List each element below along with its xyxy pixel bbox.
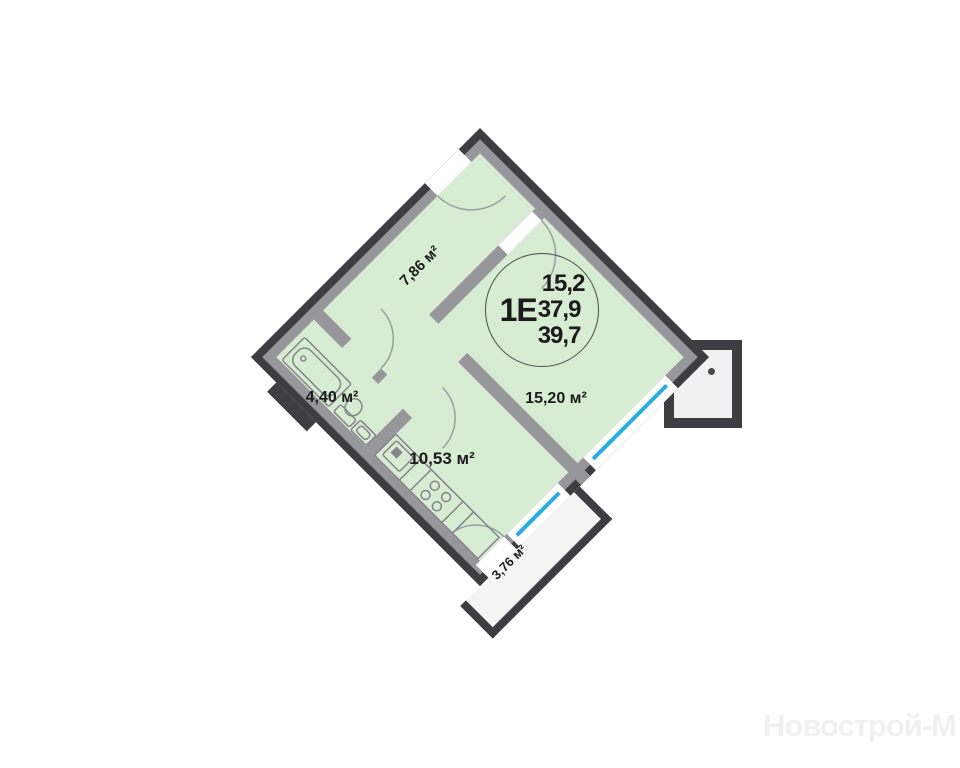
balcony-area-label: 3,76 м² (489, 542, 530, 583)
unit-total-area: 39,7 (538, 323, 581, 349)
hallway-area-label: 7,86 м² (397, 243, 444, 290)
labels-layer: 7,86 м² 4,40 м² 10,53 м² 15,20 м² 3,76 м… (0, 0, 960, 768)
living-room-area-label: 15,20 м² (525, 390, 587, 408)
unit-floor-area: 37,9 (538, 297, 581, 323)
unit-badge-circle: 1Е 15,2 37,9 39,7 (485, 253, 599, 367)
bathroom-area-label: 4,40 м² (306, 389, 359, 407)
unit-code: 1Е (500, 292, 537, 329)
unit-areas: 15,2 37,9 39,7 (538, 271, 585, 349)
floor-plan-page: 7,86 м² 4,40 м² 10,53 м² 15,20 м² 3,76 м… (0, 0, 960, 768)
developer-watermark: Новострой-М (763, 708, 956, 744)
kitchen-area-label: 10,53 м² (409, 449, 475, 469)
unit-living-area: 15,2 (542, 271, 585, 297)
